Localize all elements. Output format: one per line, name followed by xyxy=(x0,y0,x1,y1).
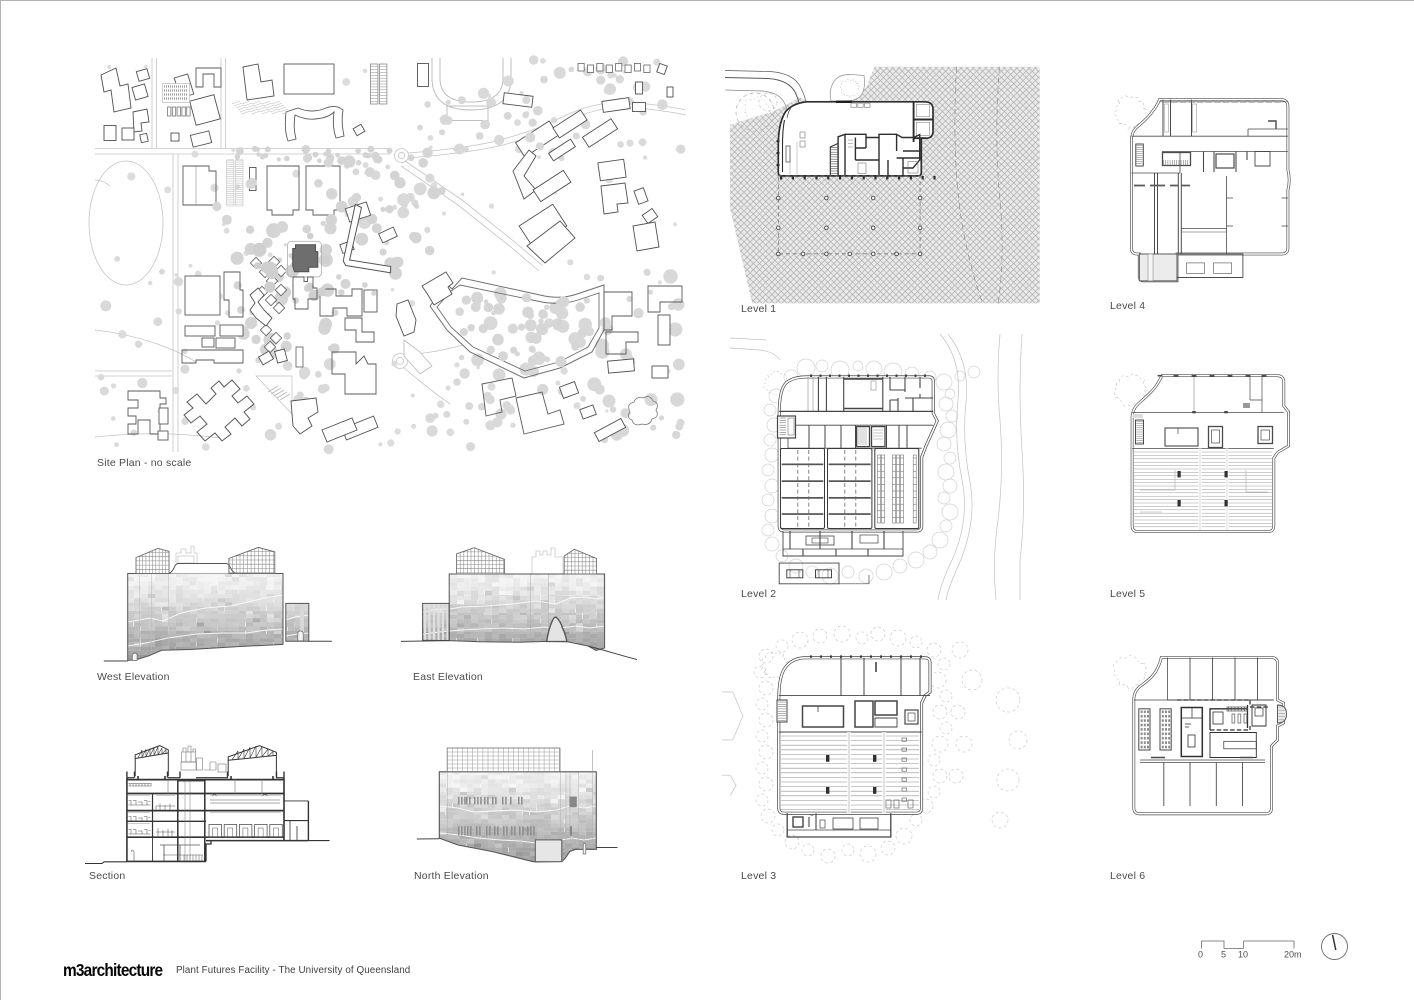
svg-text:5: 5 xyxy=(1221,950,1226,960)
svg-text:10: 10 xyxy=(1238,950,1248,960)
svg-text:0: 0 xyxy=(1198,950,1203,960)
svg-text:20m: 20m xyxy=(1284,950,1302,960)
